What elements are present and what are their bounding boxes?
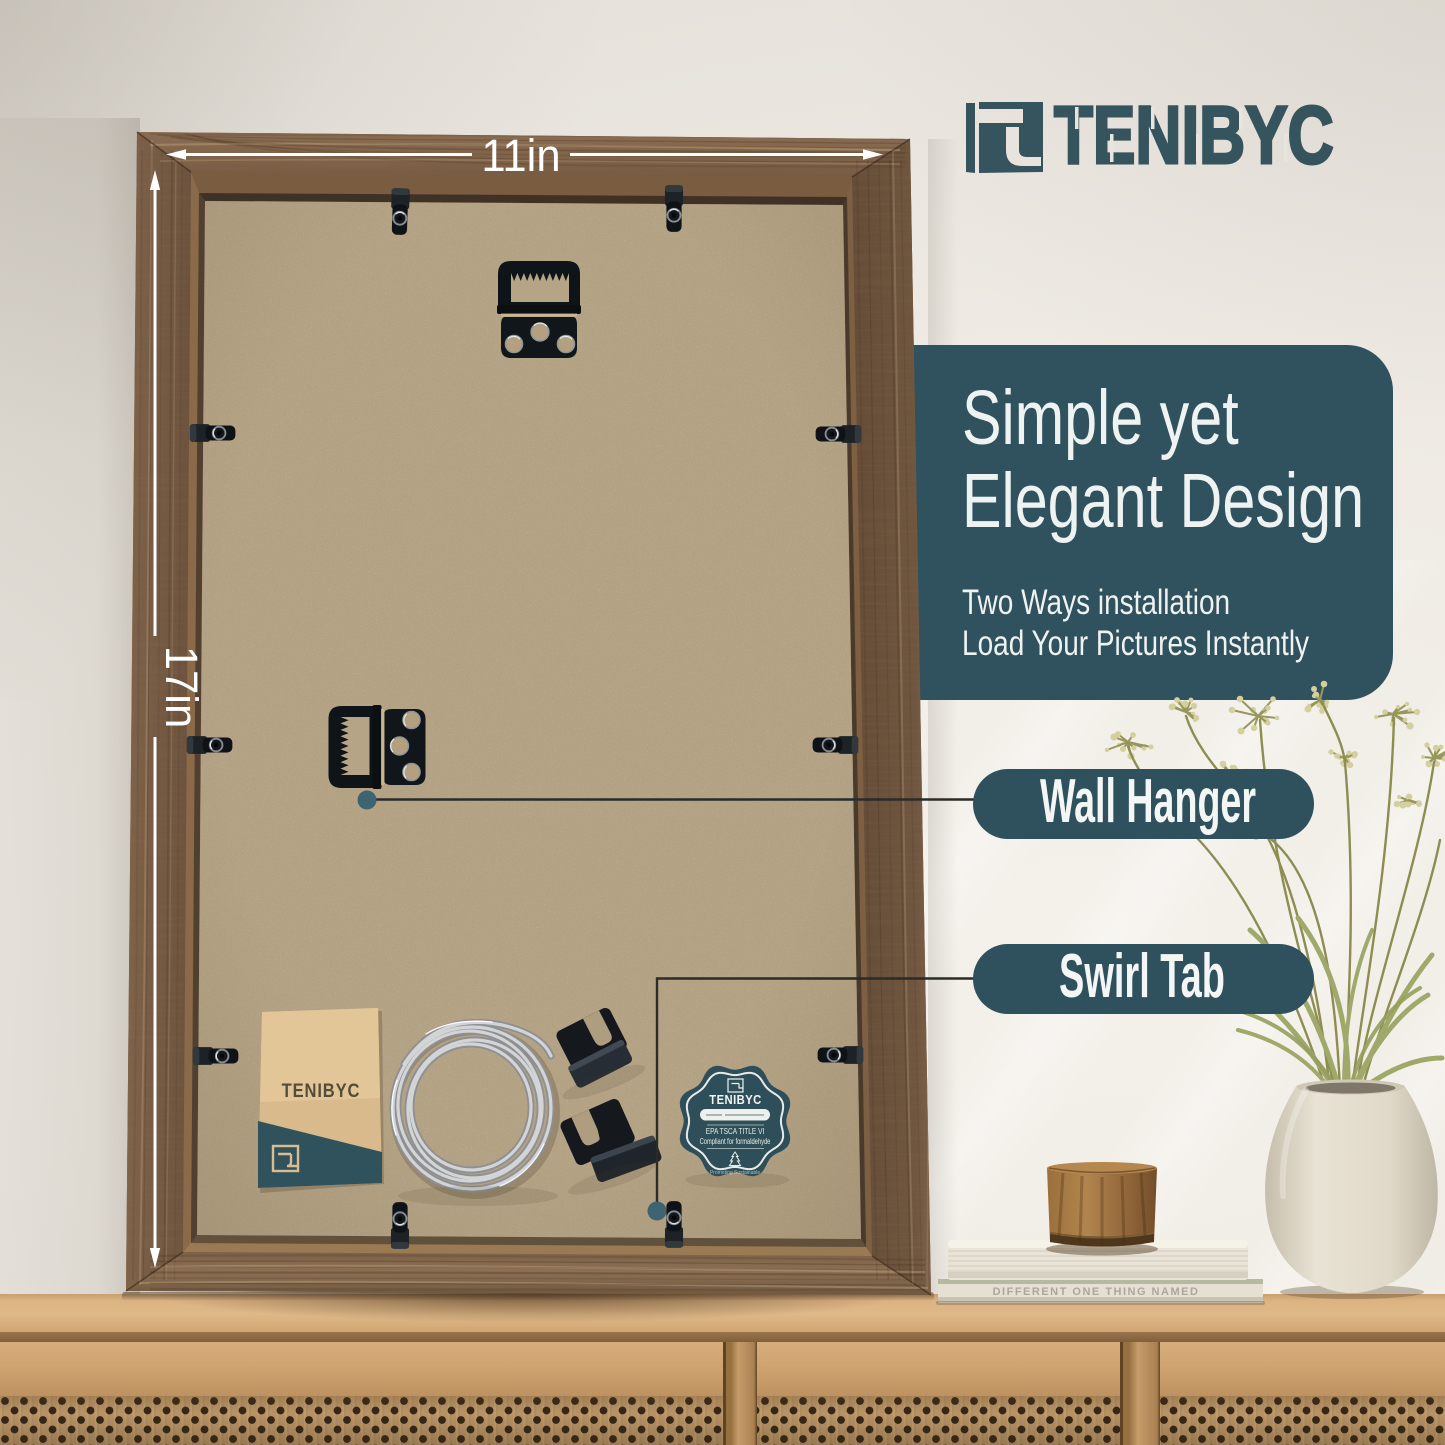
- svg-text:Simple yet: Simple yet: [962, 375, 1239, 461]
- svg-text:Wall Hanger: Wall Hanger: [1040, 767, 1256, 836]
- svg-text:Promoting Sustainable: Promoting Sustainable: [710, 1170, 761, 1176]
- svg-text:TENIBYC: TENIBYC: [282, 1080, 361, 1102]
- svg-text:TENIBYC: TENIBYC: [1054, 89, 1334, 181]
- svg-text:Swirl Tab: Swirl Tab: [1059, 942, 1225, 1011]
- svg-text:17in: 17in: [156, 646, 206, 729]
- svg-text:EPA TSCA TITLE VI: EPA TSCA TITLE VI: [706, 1126, 765, 1136]
- svg-text:Compliant for formaldehyde: Compliant for formaldehyde: [700, 1138, 771, 1146]
- svg-text:Two Ways installation: Two Ways installation: [962, 582, 1230, 622]
- svg-text:Elegant Design: Elegant Design: [962, 458, 1364, 544]
- svg-text:TENIBYC: TENIBYC: [709, 1092, 761, 1107]
- svg-text:Load Your Pictures Instantly: Load Your Pictures Instantly: [962, 623, 1309, 663]
- svg-text:11in: 11in: [481, 131, 560, 181]
- svg-text:DIFFERENT ONE THING NAMED: DIFFERENT ONE THING NAMED: [993, 1286, 1200, 1298]
